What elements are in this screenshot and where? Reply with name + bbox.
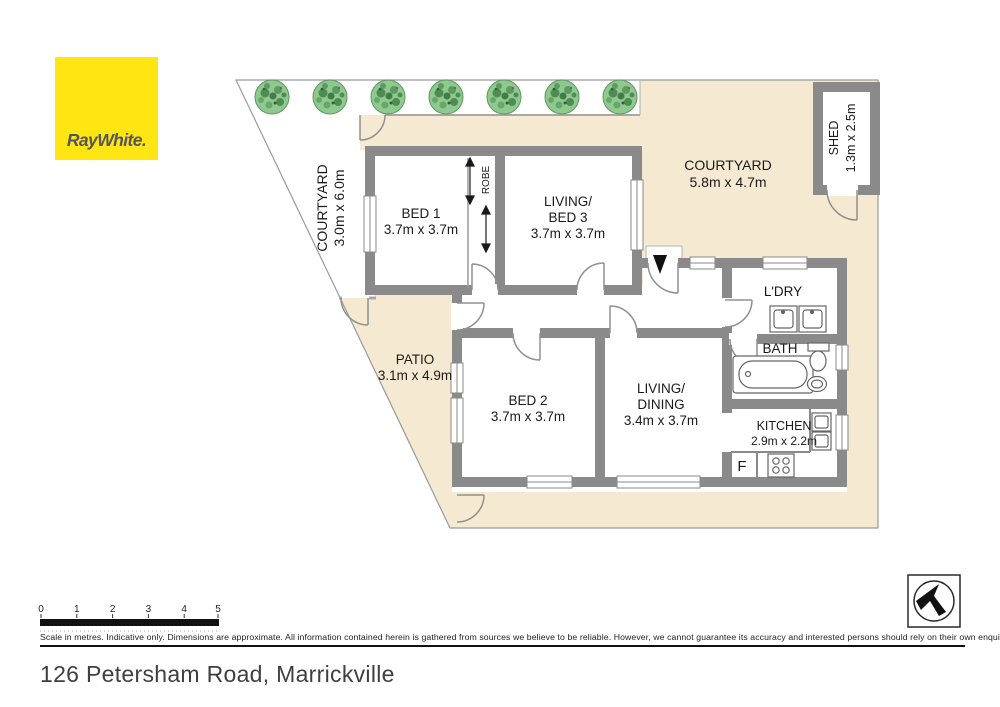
tree-icon bbox=[255, 80, 289, 114]
svg-text:3.7m x 3.7m: 3.7m x 3.7m bbox=[491, 409, 565, 424]
svg-text:3.4m x 3.7m: 3.4m x 3.7m bbox=[624, 413, 698, 428]
bath-label: BATH bbox=[762, 341, 797, 356]
svg-text:COURTYARD: COURTYARD bbox=[314, 164, 330, 251]
tree-icon bbox=[487, 80, 521, 114]
svg-text:BED 2: BED 2 bbox=[508, 393, 547, 408]
svg-text:5.8m x 4.7m: 5.8m x 4.7m bbox=[689, 174, 766, 190]
ldry-label: L'DRY bbox=[764, 284, 802, 299]
north-compass-icon bbox=[908, 575, 960, 627]
svg-text:3.1m x 4.9m: 3.1m x 4.9m bbox=[378, 368, 452, 383]
tree-icon bbox=[429, 80, 463, 114]
flyer-page: RayWhite. bbox=[0, 0, 1000, 707]
svg-text:KITCHEN: KITCHEN bbox=[757, 419, 812, 433]
divider-rule bbox=[40, 645, 965, 647]
svg-text:3.0m x 6.0m: 3.0m x 6.0m bbox=[331, 169, 347, 246]
svg-text:SHED: SHED bbox=[827, 121, 841, 156]
svg-text:BED 1: BED 1 bbox=[401, 206, 440, 221]
svg-text:2: 2 bbox=[110, 604, 116, 615]
svg-text:2.9m x 2.2m: 2.9m x 2.2m bbox=[751, 434, 817, 448]
svg-text:1: 1 bbox=[74, 604, 80, 615]
tree-icon bbox=[313, 80, 347, 114]
courtyard-right-label: COURTYARD 5.8m x 4.7m bbox=[684, 157, 771, 190]
svg-text:3.7m x 3.7m: 3.7m x 3.7m bbox=[531, 226, 605, 241]
floorplan: COURTYARD 3.0m x 6.0m COURTYARD 5.8m x 4… bbox=[0, 0, 1000, 707]
svg-text:PATIO: PATIO bbox=[396, 352, 435, 367]
tree-icon bbox=[545, 80, 579, 114]
cooktop bbox=[768, 454, 794, 477]
disclaimer-text: Scale in metres. Indicative only. Dimens… bbox=[40, 632, 966, 642]
fridge-label: F bbox=[737, 458, 746, 475]
robe-label: ROBE bbox=[481, 166, 492, 195]
kitchen-label: KITCHEN 2.9m x 2.2m bbox=[751, 419, 817, 448]
courtyard-left-label: COURTYARD 3.0m x 6.0m bbox=[314, 164, 347, 251]
svg-text:COURTYARD: COURTYARD bbox=[684, 157, 771, 173]
svg-text:0: 0 bbox=[38, 604, 44, 615]
svg-text:LIVING/: LIVING/ bbox=[637, 381, 685, 396]
svg-text:1.3m x 2.5m: 1.3m x 2.5m bbox=[844, 104, 858, 173]
tree-icon bbox=[603, 80, 637, 114]
svg-text:3.7m x 3.7m: 3.7m x 3.7m bbox=[384, 222, 458, 237]
tree-icon bbox=[371, 80, 405, 114]
property-address: 126 Petersham Road, Marrickville bbox=[40, 661, 395, 688]
scale-bar: 0 1 2 3 4 5 bbox=[38, 604, 221, 631]
svg-text:5: 5 bbox=[215, 604, 221, 615]
svg-text:DINING: DINING bbox=[637, 397, 684, 412]
bathtub bbox=[733, 356, 813, 393]
basin bbox=[808, 377, 827, 392]
svg-text:3: 3 bbox=[146, 604, 152, 615]
svg-text:LIVING/: LIVING/ bbox=[544, 194, 592, 209]
svg-text:4: 4 bbox=[181, 604, 187, 615]
svg-text:BED 3: BED 3 bbox=[548, 210, 587, 225]
